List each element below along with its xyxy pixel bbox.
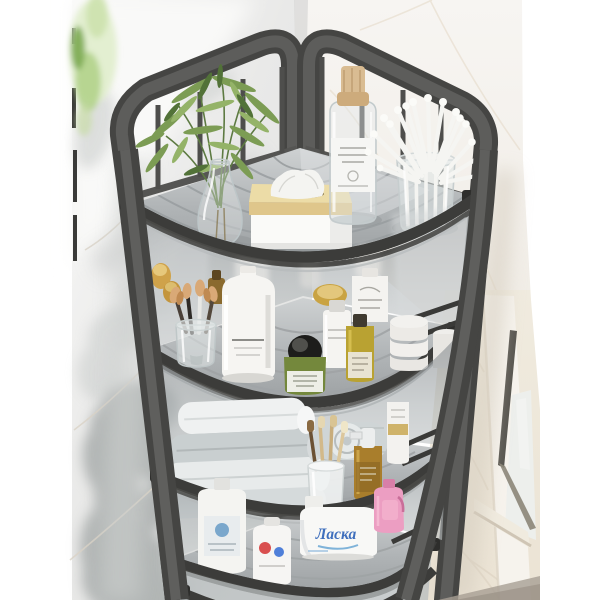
svg-text:Ласка: Ласка	[315, 526, 357, 543]
